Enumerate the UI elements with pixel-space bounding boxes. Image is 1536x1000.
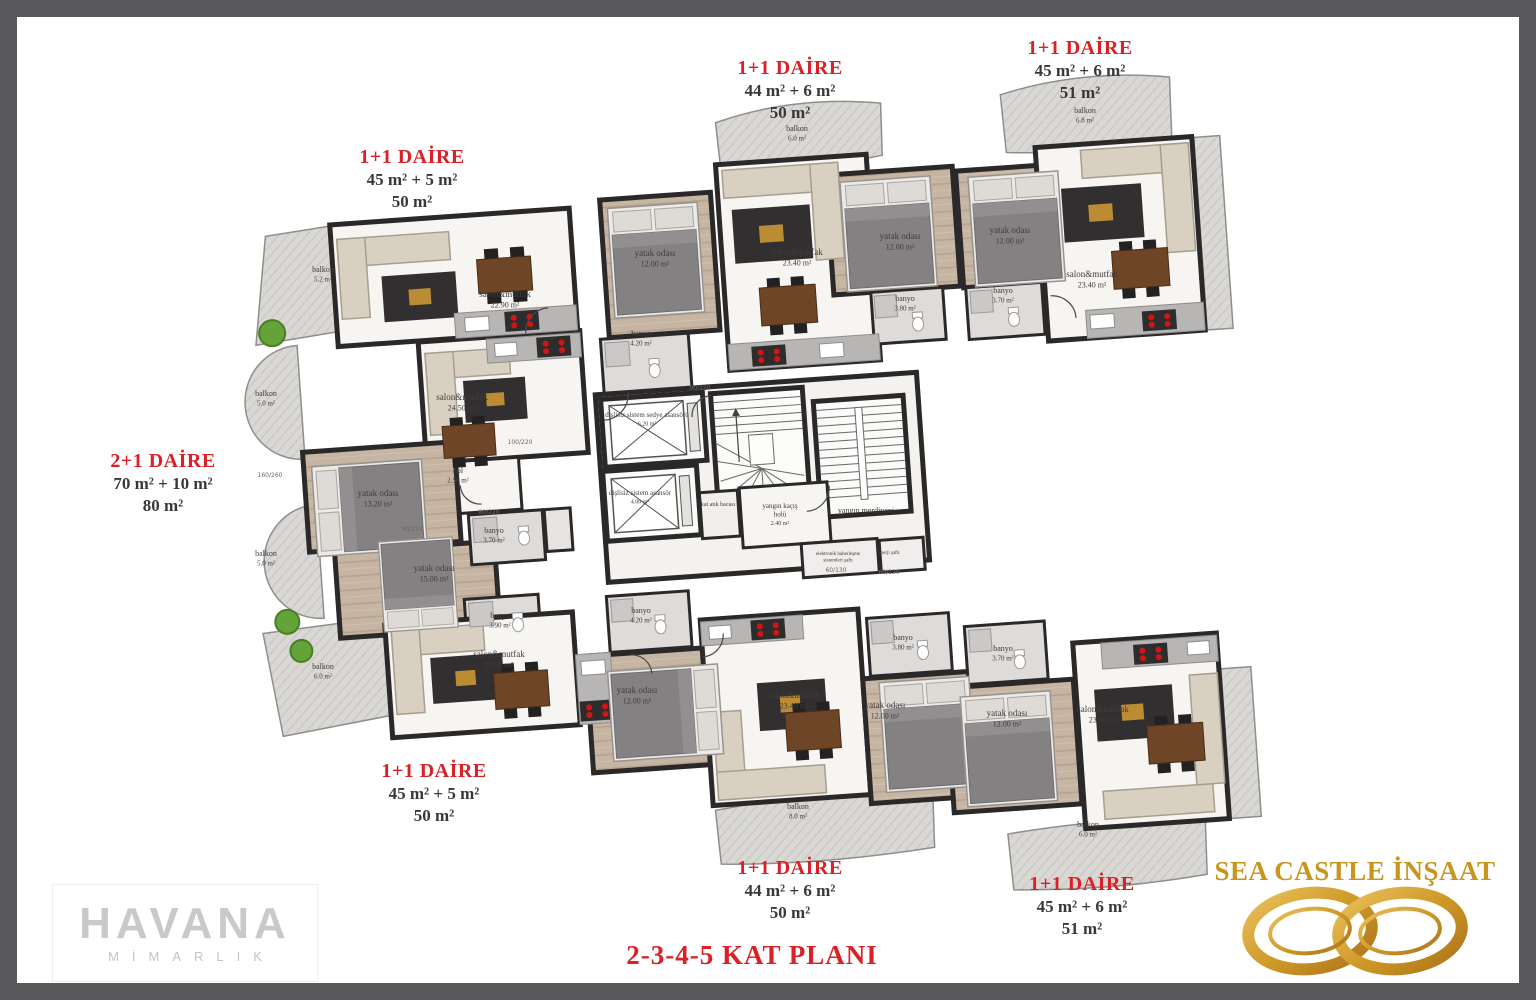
sea-castle-logo-text: SEA CASTLE İNŞAAT: [1204, 856, 1506, 887]
apartment-type-label: 1+1 DAİRE44 m² + 6 m²50 m²: [737, 57, 842, 124]
infinity-swirl-icon: [1215, 883, 1495, 979]
havana-logo-text: HAVANA: [79, 903, 291, 945]
apartment-labels-layer: 1+1 DAİRE45 m² + 5 m²50 m²1+1 DAİRE44 m²…: [0, 0, 1536, 1000]
apartment-type-label: 1+1 DAİRE44 m² + 6 m²50 m²: [737, 857, 842, 924]
apartment-type-label: 1+1 DAİRE45 m² + 5 m²50 m²: [381, 760, 486, 827]
floor-plan-title: 2-3-4-5 KAT PLANI: [626, 940, 878, 971]
apartment-type-label: 1+1 DAİRE45 m² + 5 m²50 m²: [359, 146, 464, 213]
apartment-type-label: 1+1 DAİRE45 m² + 6 m²51 m²: [1027, 37, 1132, 104]
sea-castle-logo: SEA CASTLE İNŞAAT: [1204, 856, 1506, 979]
apartment-type-label: 1+1 DAİRE45 m² + 6 m²51 m²: [1029, 873, 1134, 940]
apartment-type-label: 2+1 DAİRE70 m² + 10 m²80 m²: [110, 450, 215, 517]
havana-logo-subtitle: MİMARLIK: [95, 949, 275, 964]
havana-logo: HAVANA MİMARLIK: [52, 884, 318, 982]
